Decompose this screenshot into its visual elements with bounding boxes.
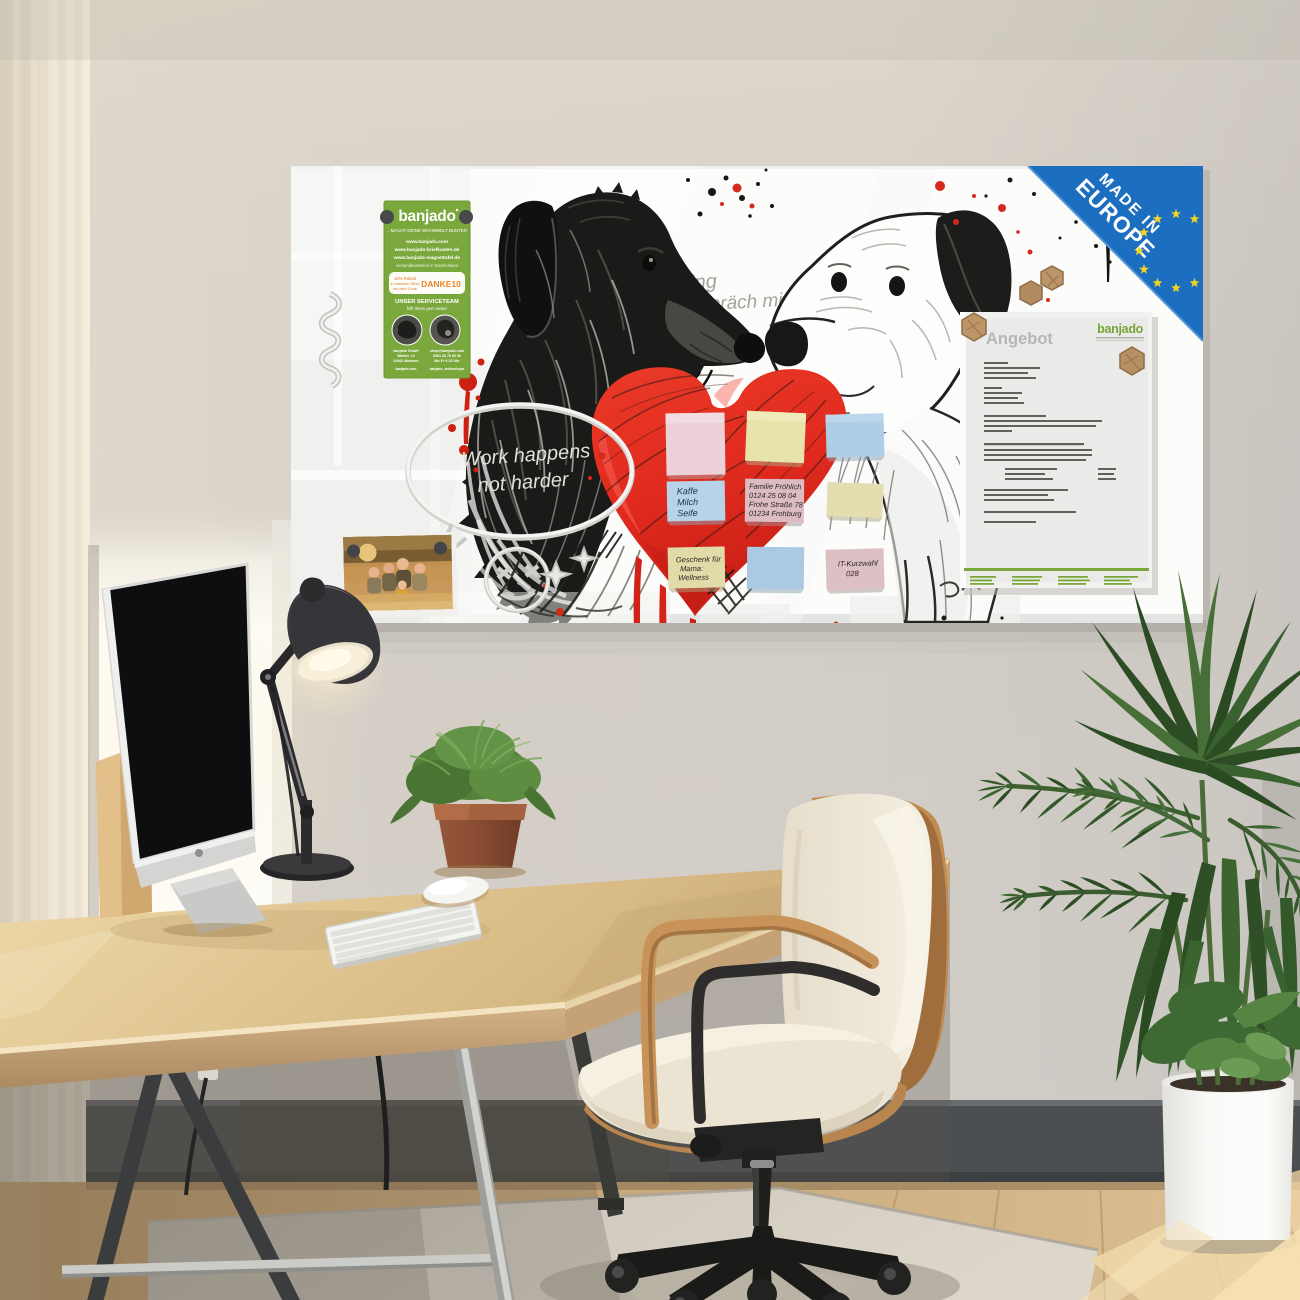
svg-text:in unserem Shop: in unserem Shop [391,282,420,286]
svg-text:Kaffe: Kaffe [677,486,698,496]
svg-text:15% Rabatt: 15% Rabatt [394,276,417,281]
svg-text:www.banjado-briefkasten.de: www.banjado-briefkasten.de [394,247,460,253]
svg-text:Wallstr. 12: Wallstr. 12 [397,354,415,358]
svg-text:shop@banjado.com: shop@banjado.com [430,349,464,353]
svg-text:Geschenk für: Geschenk für [676,554,722,564]
svg-text:Seife: Seife [677,508,698,518]
svg-text:banjado_onlineshops: banjado_onlineshops [430,367,465,371]
svg-text:Milch: Milch [677,497,698,507]
svg-text:DANKE10: DANKE10 [421,279,461,289]
svg-text:Wellness: Wellness [678,573,709,583]
svg-text:banjado: banjado [398,208,455,225]
svg-text:...MACHT DEINE WOHNWELT BUNTER: ...MACHT DEINE WOHNWELT BUNTER [387,228,467,233]
svg-text:Mama:: Mama: [680,564,703,573]
svg-text:banjado: banjado [1097,322,1143,336]
svg-text:banjado GmbH: banjado GmbH [393,349,419,353]
svg-text:UNSER SERVICETEAM: UNSER SERVICETEAM [395,299,459,305]
svg-text:0351 26 76 06 06: 0351 26 76 06 06 [433,354,461,358]
svg-text:www.banjado.com: www.banjado.com [405,239,448,245]
svg-text:028: 028 [846,569,860,578]
svg-text:01662 Meissen: 01662 Meissen [393,359,418,363]
svg-text:0124 25 08 04: 0124 25 08 04 [749,491,796,500]
svg-text:Mo-Fr 9-15 Uhr: Mo-Fr 9-15 Uhr [434,359,460,363]
svg-text:IT-Kurzwahl: IT-Kurzwahl [838,558,878,568]
svg-text:www.banjado-magnettafel.de: www.banjado-magnettafel.de [393,255,461,261]
svg-text:hilft Ihnen gern weiter: hilft Ihnen gern weiter [407,306,448,311]
svg-text:versandkostenfrei in Deutschla: versandkostenfrei in Deutschland [396,263,459,268]
svg-text:banjado.com: banjado.com [396,367,417,371]
svg-text:01234 Frohburg: 01234 Frohburg [749,509,803,519]
svg-text:mit dem Code: mit dem Code [393,287,417,291]
svg-text:Angebot: Angebot [986,330,1053,348]
